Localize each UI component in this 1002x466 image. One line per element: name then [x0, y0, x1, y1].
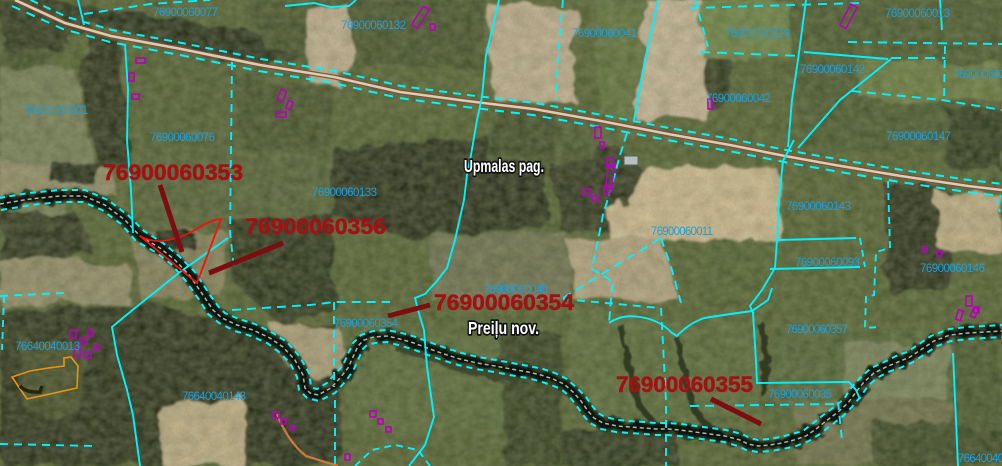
- svg-text:76900060077: 76900060077: [153, 7, 218, 19]
- svg-text:76900060041: 76900060041: [572, 28, 637, 40]
- svg-text:76900060147: 76900060147: [886, 131, 951, 143]
- svg-text:76900060354: 76900060354: [434, 290, 575, 315]
- svg-text:76900060035: 76900060035: [768, 389, 832, 401]
- svg-text:76900060356: 76900060356: [245, 214, 386, 239]
- svg-text:76900060353: 76900060353: [103, 160, 243, 185]
- svg-text:76900060355: 76900060355: [616, 372, 753, 397]
- svg-text:76900060001: 76900060001: [23, 105, 88, 117]
- svg-text:76900060132: 76900060132: [341, 20, 406, 32]
- svg-text:76900060011: 76900060011: [651, 226, 713, 238]
- svg-text:Upmalas pag.: Upmalas pag.: [464, 156, 544, 176]
- svg-text:76900060076: 76900060076: [150, 132, 215, 144]
- svg-text:76900060142: 76900060142: [800, 64, 865, 76]
- svg-text:76900060357: 76900060357: [786, 324, 848, 336]
- svg-text:Preiļu nov.: Preiļu nov.: [468, 318, 539, 338]
- svg-text:76900060013: 76900060013: [885, 8, 950, 20]
- svg-text:76900060354: 76900060354: [334, 318, 399, 330]
- svg-text:76900060143: 76900060143: [786, 201, 851, 213]
- svg-text:76900060219: 76900060219: [725, 28, 790, 40]
- svg-text:76640040: 76640040: [958, 453, 1002, 465]
- svg-text:76900060133: 76900060133: [312, 187, 377, 199]
- svg-text:769000602: 769000602: [953, 69, 1002, 81]
- svg-text:76640040013: 76640040013: [15, 341, 80, 353]
- svg-text:76900060042: 76900060042: [706, 93, 771, 105]
- svg-text:76640040143: 76640040143: [182, 391, 246, 403]
- svg-text:76900060146: 76900060146: [920, 263, 985, 275]
- svg-text:76900060093: 76900060093: [795, 257, 860, 269]
